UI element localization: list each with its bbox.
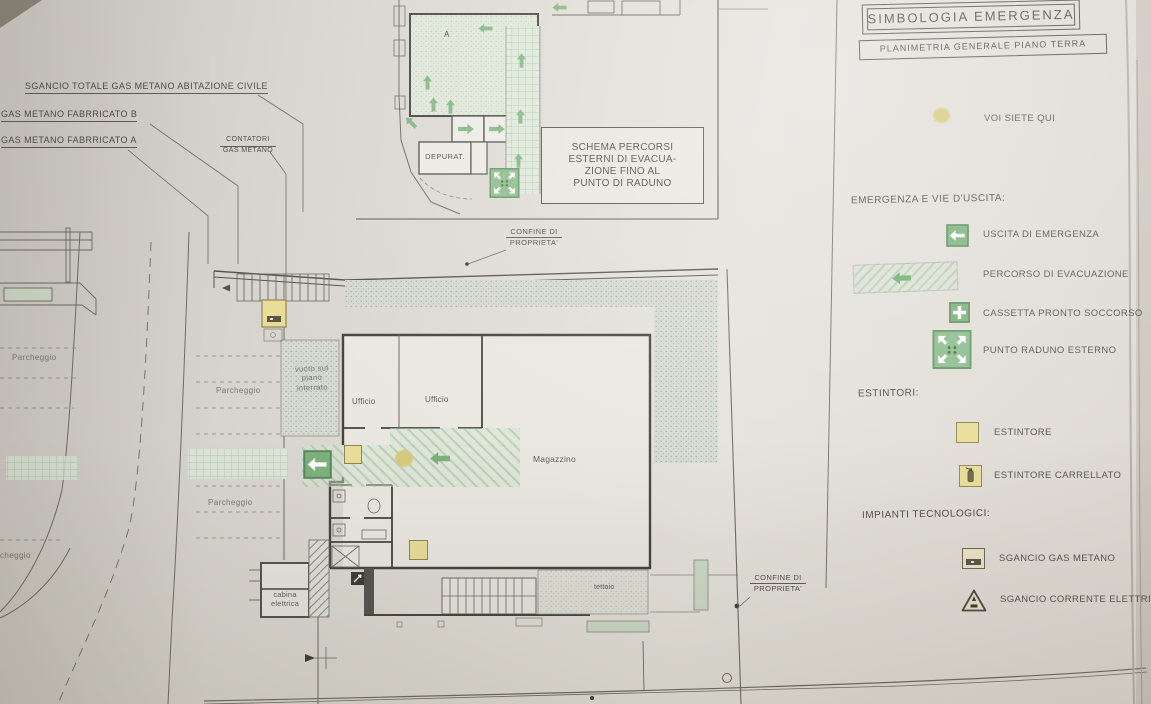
title-box: SIMBOLOGIA EMERGENZA bbox=[862, 0, 1081, 34]
legend-divider bbox=[826, 0, 837, 588]
crosswalks bbox=[6, 449, 288, 480]
first-aid-box-icon bbox=[949, 302, 970, 323]
legend-label-exit: USCITA DI EMERGENZA bbox=[983, 229, 1099, 241]
parking-label-middle: Parcheggio bbox=[216, 386, 260, 396]
inset-note-box: SCHEMA PERCORSI ESTERNI DI EVACUA- ZIONE… bbox=[541, 127, 704, 204]
assembly-point-icon bbox=[931, 330, 973, 369]
boundary-right-line2: PROPRIETA' bbox=[750, 584, 806, 593]
you-are-here-dot bbox=[933, 108, 950, 123]
callout-boundary-right: CONFINE DI PROPRIETA' bbox=[750, 573, 806, 594]
void-note-line3: interrato bbox=[286, 382, 338, 393]
legend-label-assembly: PUNTO RADUNO ESTERNO bbox=[983, 345, 1116, 357]
route-arrow-icon bbox=[892, 272, 911, 285]
title-box-inner: SIMBOLOGIA EMERGENZA bbox=[867, 4, 1075, 31]
evacuation-route-icon bbox=[853, 261, 959, 294]
room-office-right: Ufficio bbox=[425, 395, 448, 405]
sheet-subtitle: PLANIMETRIA GENERALE PIANO TERRA bbox=[880, 39, 1087, 56]
systems-section-heading: IMPIANTI TECNOLOGICI: bbox=[862, 508, 990, 523]
stairs-and-canopy bbox=[351, 560, 738, 632]
legend-label-route: PERCORSO DI EVACUAZIONE bbox=[983, 269, 1129, 281]
electric-shutoff-icon bbox=[961, 589, 987, 612]
evacuation-plan-photo: SGANCIO TOTALE GAS METANO ABITAZIONE CIV… bbox=[0, 0, 1151, 704]
boundary-top-line2: PROPRIETA' bbox=[506, 238, 562, 247]
parking-label-lower: Parcheggio bbox=[208, 498, 252, 508]
top-left-structures bbox=[0, 228, 96, 315]
legend-label-first-aid: CASSETTA PRONTO SOCCORSO bbox=[983, 308, 1143, 320]
boundary-top-line1: CONFINE DI bbox=[506, 227, 562, 238]
legend-label-gas-shutoff: SGANCIO GAS METANO bbox=[999, 553, 1115, 565]
gas-meters-line2: GAS METANO bbox=[220, 147, 276, 156]
extinguisher-marker-2 bbox=[409, 540, 428, 560]
gas-glyph-dot bbox=[971, 561, 974, 563]
electrical-cabin-line1: cabina bbox=[263, 590, 307, 599]
inset-note-line4: PUNTO DI RADUNO bbox=[542, 178, 703, 189]
parking-label-left: Parcheggio bbox=[12, 353, 56, 363]
gas-meters-line1: CONTATORI bbox=[220, 136, 276, 147]
extinguisher-glyph bbox=[960, 464, 980, 486]
room-electrical-cabin: cabina elettrica bbox=[263, 590, 307, 609]
extinguisher-marker-1 bbox=[344, 445, 362, 464]
room-canopy: tettoio bbox=[594, 584, 614, 593]
void-note: vuoto sul piano interrato bbox=[286, 363, 339, 393]
extinguisher-section-heading: ESTINTORI: bbox=[858, 387, 919, 401]
assembly-point-marker bbox=[489, 168, 520, 198]
callout-gas-building-a: GAS METANO FABRRICATO A bbox=[1, 135, 137, 148]
callout-gas-meters: CONTATORI GAS METANO bbox=[220, 136, 276, 156]
boundary-right-line1: CONFINE DI bbox=[750, 573, 806, 584]
inset-block-mark: A bbox=[444, 30, 450, 40]
sheet-title: SIMBOLOGIA EMERGENZA bbox=[867, 7, 1074, 28]
room-warehouse: Magazzino bbox=[533, 454, 576, 465]
you-are-here-label: VOI SIETE QUI bbox=[984, 113, 1055, 125]
legend-label-extinguisher: ESTINTORE bbox=[994, 427, 1052, 439]
legend-label-electric-shutoff: SGANCIO CORRENTE ELETTRICA bbox=[1000, 594, 1151, 606]
gas-shutoff-icon bbox=[962, 548, 985, 569]
parking-stalls bbox=[0, 348, 284, 540]
callout-boundary-top: CONFINE DI PROPRIETA' bbox=[506, 227, 562, 248]
emergency-exit-icon bbox=[946, 224, 969, 247]
extinguisher-icon bbox=[956, 422, 979, 443]
wheeled-extinguisher-icon bbox=[959, 465, 982, 487]
callout-gas-total-shutoff: SGANCIO TOTALE GAS METANO ABITAZIONE CIV… bbox=[25, 81, 268, 94]
you-are-here-marker bbox=[395, 450, 413, 467]
inset-note-line2: ESTERNI DI EVACUA- bbox=[542, 154, 703, 165]
emergency-exit-marker bbox=[303, 450, 332, 479]
depurator-label: DEPURAT. bbox=[423, 152, 467, 161]
inset-note-line1: SCHEMA PERCORSI bbox=[542, 142, 703, 153]
room-office-left: Ufficio bbox=[352, 397, 375, 407]
callout-gas-building-b: GAS METANO FABRRICATO B bbox=[1, 109, 137, 122]
parking-label-partial: cheggio bbox=[0, 551, 31, 561]
gas-meter-box bbox=[262, 300, 286, 341]
electrical-cabin-line2: elettrica bbox=[263, 599, 307, 608]
legend-label-wheeled-extinguisher: ESTINTORE CARRELLATO bbox=[994, 470, 1121, 482]
inset-note-line3: ZIONE FINO AL bbox=[542, 166, 703, 177]
